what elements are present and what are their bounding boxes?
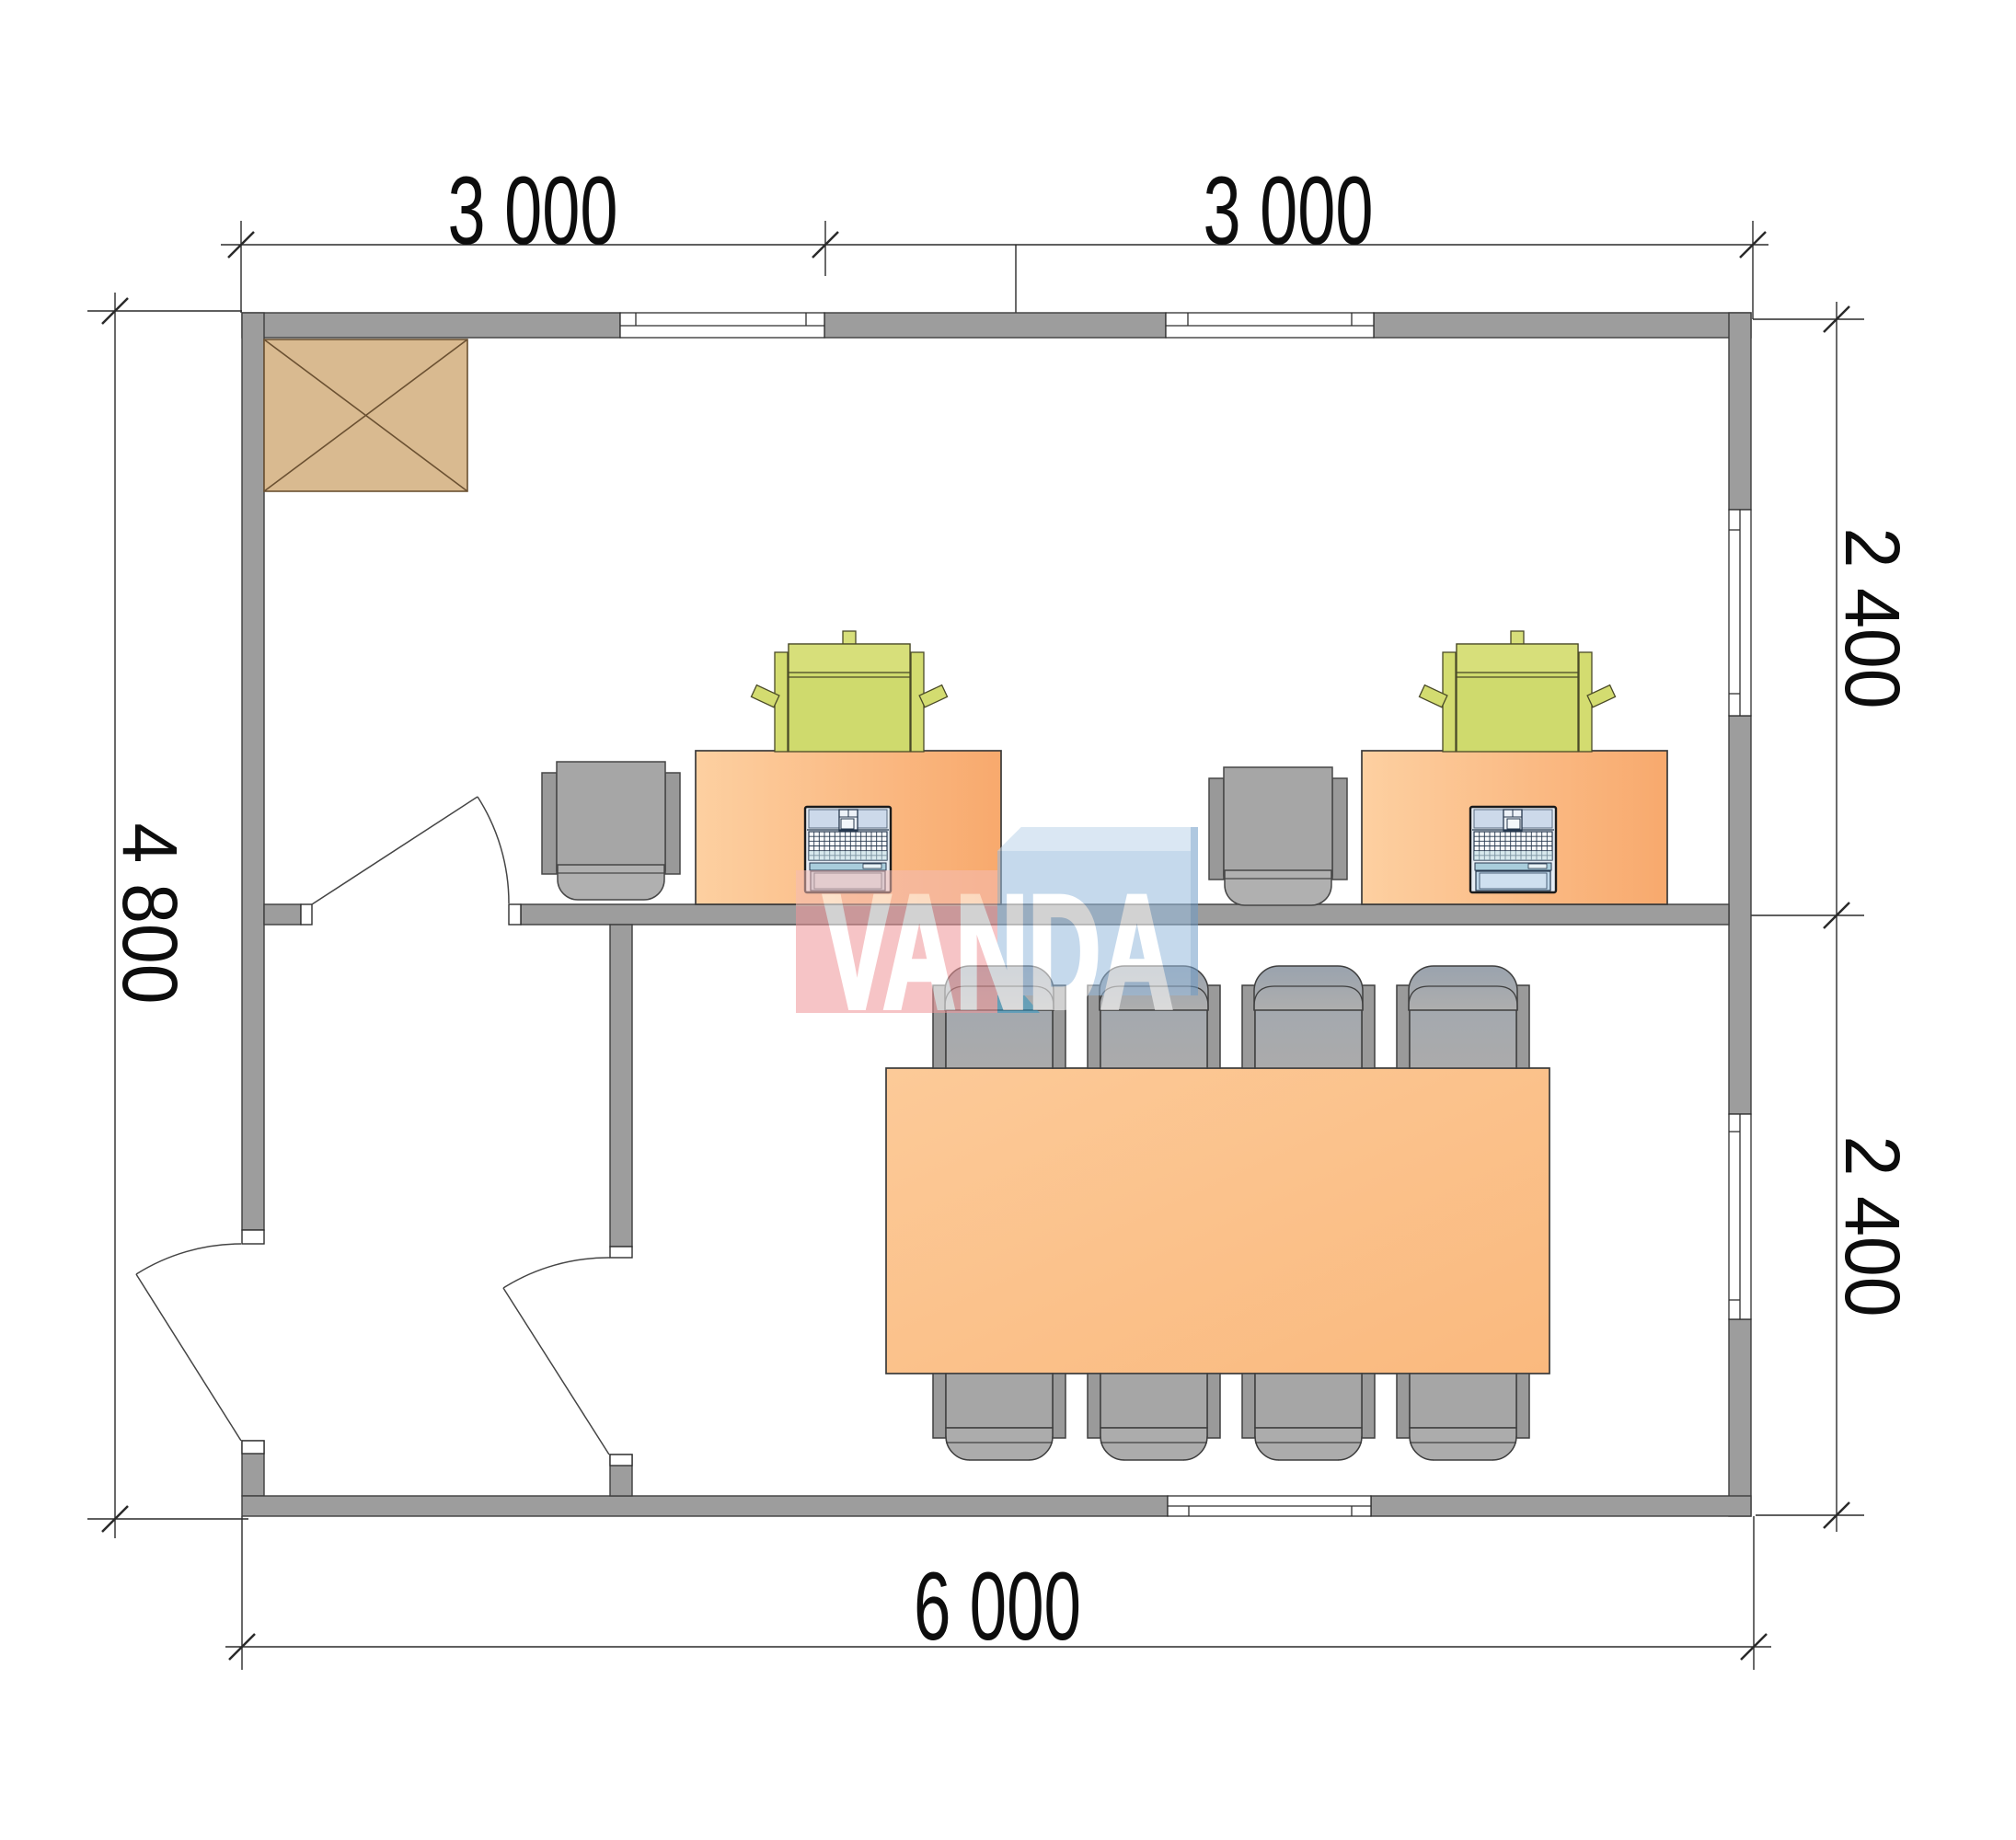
svg-text:3 000: 3 000 — [448, 157, 618, 265]
svg-text:2 400: 2 400 — [1829, 528, 1916, 709]
svg-text:VANDA: VANDA — [824, 863, 1173, 1042]
svg-text:4 800: 4 800 — [107, 823, 193, 1005]
svg-text:3 000: 3 000 — [1204, 157, 1374, 265]
svg-text:2 400: 2 400 — [1829, 1136, 1916, 1317]
svg-text:6 000: 6 000 — [914, 1553, 1081, 1661]
